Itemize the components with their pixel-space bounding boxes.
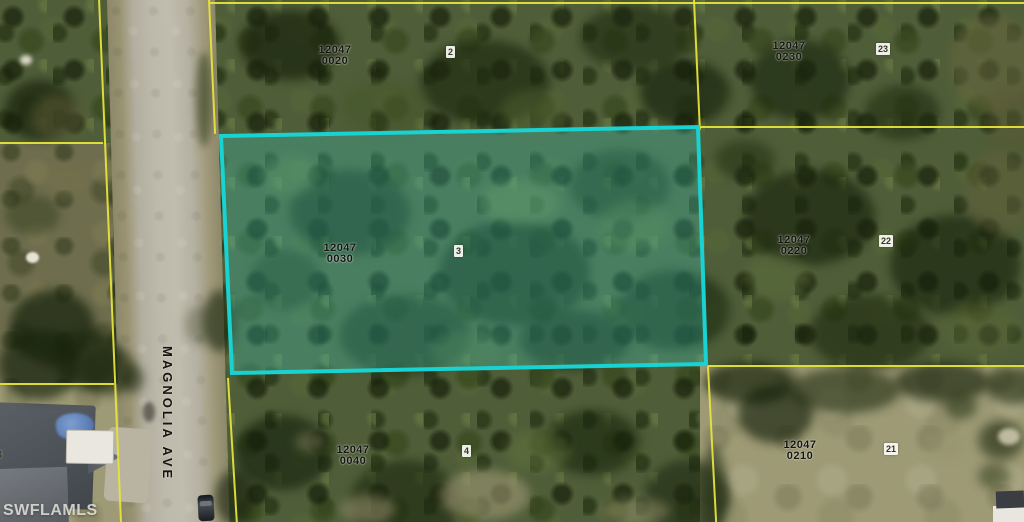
tree-canopy-blob (715, 140, 775, 180)
sand-patch-blob (295, 432, 325, 452)
mls-watermark: SWFLAMLS (3, 502, 98, 520)
parcel-label-0030: 12047 0030 (316, 243, 364, 265)
car-windshield (200, 501, 212, 507)
parcel-label-0210: 12047 0210 (776, 440, 824, 462)
light-canopy-blob (340, 80, 430, 135)
lot-marker: 23 (876, 43, 890, 55)
car-on-road (197, 495, 214, 522)
light-canopy-blob (260, 155, 320, 195)
light-canopy-blob (600, 200, 670, 250)
roadside-object (143, 402, 155, 422)
tree-shadow-blob (196, 52, 212, 147)
parcel-lot: 0030 (316, 254, 364, 265)
tree-canopy-blob (810, 295, 930, 370)
white-dome-object (998, 428, 1020, 445)
tree-canopy-blob (640, 60, 730, 125)
garage-roof (66, 430, 115, 465)
parcel-line-northeast (697, 126, 1024, 128)
tree-canopy-blob (250, 250, 320, 310)
tree-canopy-blob (0, 330, 80, 400)
aerial-map: 12047 0020 12047 0230 12047 0030 12047 0… (0, 0, 1024, 522)
parcel-lot: 0210 (776, 451, 824, 462)
parcel-line-southeast (707, 365, 1024, 367)
lot-marker: 4 (462, 445, 471, 457)
sand-patch-blob (340, 495, 395, 522)
light-canopy-blob (430, 330, 500, 370)
light-canopy-blob (505, 430, 570, 472)
palm-tree-blob (945, 393, 977, 419)
light-canopy-blob (745, 255, 810, 300)
tree-canopy-blob (865, 85, 940, 140)
parcel-line-west-lower (0, 383, 114, 385)
white-object (26, 252, 39, 263)
tree-shadow-blob (185, 305, 215, 345)
lot-marker: 21 (884, 443, 898, 455)
tree-canopy-blob (520, 310, 630, 370)
light-canopy-blob (500, 90, 570, 135)
building-roof (996, 491, 1024, 509)
sand-patch-blob (600, 498, 670, 522)
lot-marker: 3 (454, 245, 463, 257)
parcel-lot: 0230 (765, 52, 813, 63)
grass-patch-blob (925, 428, 965, 458)
sand-patch-blob (440, 470, 530, 520)
parcel-line-north (209, 2, 1024, 4)
scrub-blob (5, 195, 60, 235)
parcel-lot: 0220 (770, 246, 818, 257)
street-label-magnolia-ave: MAGNOLIA AVE (160, 346, 175, 481)
parcel-label-0220: 12047 0220 (770, 235, 818, 257)
light-canopy-blob (940, 300, 1020, 355)
light-canopy-blob (480, 180, 560, 225)
tree-canopy-blob (738, 385, 813, 443)
scrub-blob (45, 165, 90, 197)
tree-canopy-blob (620, 270, 730, 350)
white-object (20, 55, 32, 65)
palm-tree-blob (978, 463, 1010, 489)
dry-brush-blob (30, 95, 85, 140)
parcel-label-0020: 12047 0020 (311, 45, 359, 67)
edge-lot-label: 3 (0, 449, 2, 461)
parcel-label-0230: 12047 0230 (765, 41, 813, 63)
parcel-label-0040: 12047 0040 (329, 445, 377, 467)
parcel-line-west-upper (0, 142, 103, 144)
tree-canopy-blob (80, 345, 135, 395)
tree-line-blob (895, 362, 990, 402)
lot-marker: 22 (879, 235, 893, 247)
lot-marker: 2 (446, 46, 455, 58)
parcel-lot: 0020 (311, 56, 359, 67)
parcel-lot: 0040 (329, 456, 377, 467)
